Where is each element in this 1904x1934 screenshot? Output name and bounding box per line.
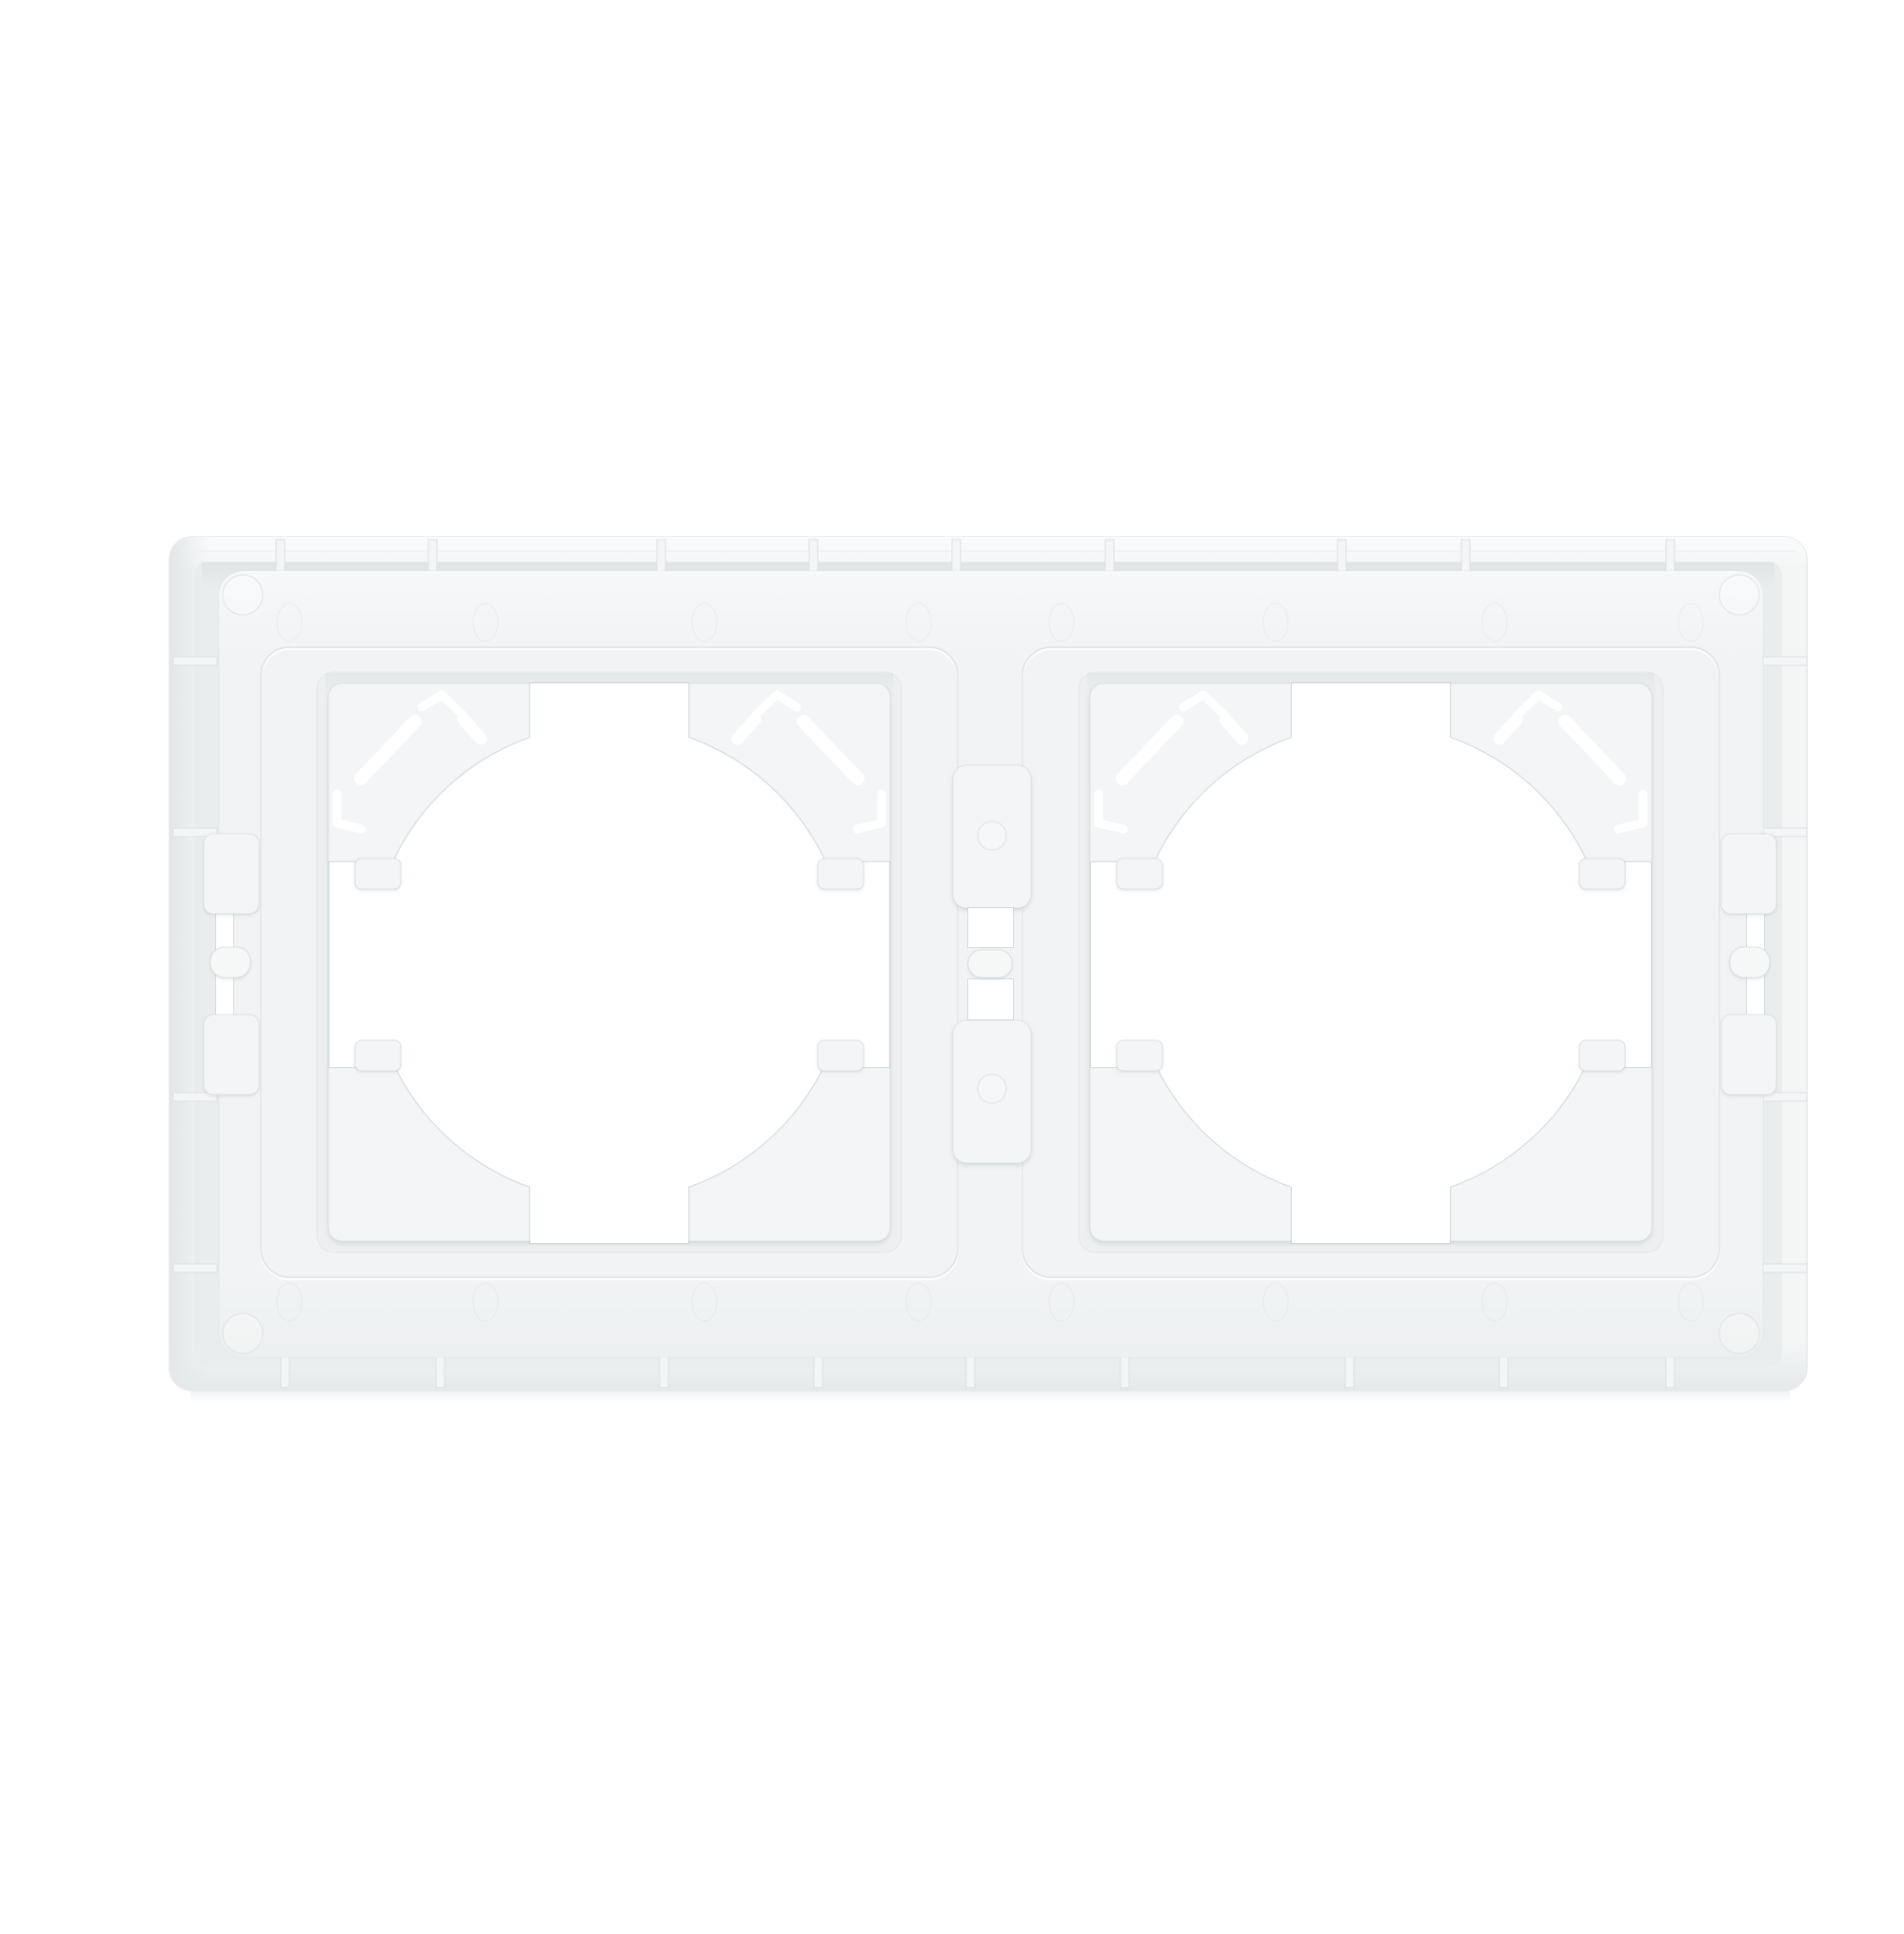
cast-shadow [190, 1390, 1790, 1403]
coupling-hole-lower [968, 979, 1013, 1019]
coupling-hole-upper [968, 908, 1013, 947]
product-photo [38, 15, 1904, 1919]
module-aperture-left [261, 647, 958, 1279]
coupling-boss-lower [978, 1075, 1006, 1103]
side-clip-right [1721, 834, 1776, 1095]
coupling-knob [968, 950, 1012, 977]
double-frame-back [169, 537, 1807, 1391]
module-aperture-right [1022, 647, 1719, 1279]
coupling-boss-upper [978, 821, 1006, 850]
side-clip-left [204, 834, 259, 1095]
